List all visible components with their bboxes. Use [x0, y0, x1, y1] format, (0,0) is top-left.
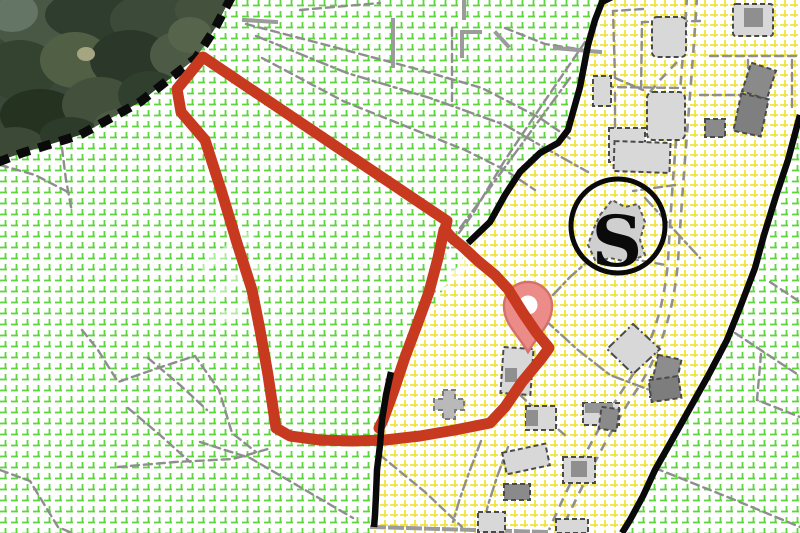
- zoning-map-canvas[interactable]: S VI: [0, 0, 800, 533]
- zone-s-label: S: [592, 200, 643, 283]
- zoning-map[interactable]: S VI: [0, 0, 800, 533]
